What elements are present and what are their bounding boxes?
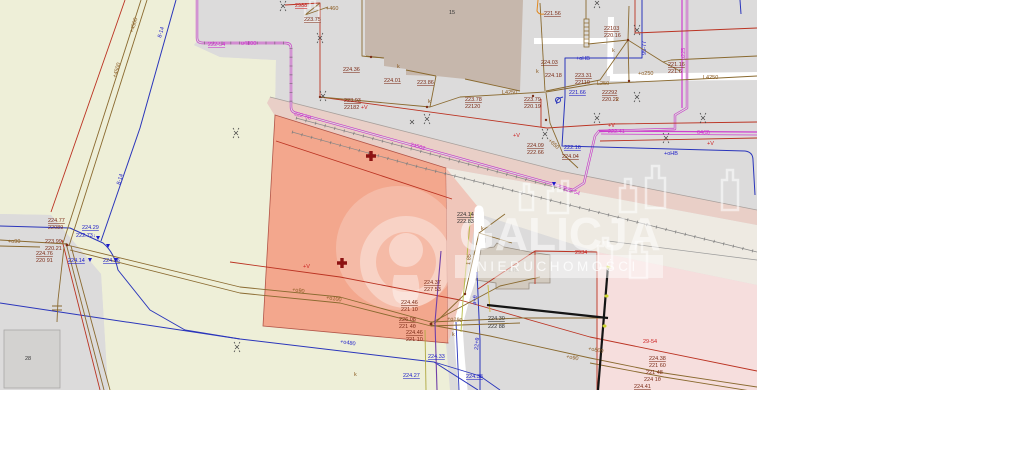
svg-text:221.56: 221.56 — [544, 11, 561, 17]
svg-text:224.38: 224.38 — [649, 356, 666, 362]
svg-text:224.46: 224.46 — [401, 300, 418, 306]
svg-text:221 10: 221 10 — [406, 337, 423, 343]
svg-text:224.14: 224.14 — [68, 258, 85, 264]
svg-text:223.79: 223.79 — [524, 97, 541, 103]
svg-text:NIERUCHOMOŚCI: NIERUCHOMOŚCI — [477, 259, 639, 274]
svg-text:22+θ: 22+θ — [474, 337, 481, 350]
svg-text:223.31: 223.31 — [575, 73, 592, 79]
svg-text:224.29: 224.29 — [82, 225, 99, 231]
svg-text:L250: L250 — [597, 81, 609, 87]
svg-text:95-77: 95-77 — [642, 41, 648, 55]
svg-text:227 53: 227 53 — [424, 287, 441, 293]
svg-text:224.46: 224.46 — [406, 330, 423, 336]
svg-text:k: k — [397, 64, 400, 70]
svg-text:64(3): 64(3) — [697, 130, 710, 136]
svg-text:22120: 22120 — [465, 104, 480, 110]
svg-text:222.66: 222.66 — [527, 150, 544, 156]
svg-text:224.04: 224.04 — [562, 154, 579, 160]
svg-text:222 88: 222 88 — [488, 324, 505, 330]
svg-text:22119: 22119 — [575, 80, 590, 86]
svg-text:221.66: 221.66 — [569, 90, 586, 96]
svg-text:L4250: L4250 — [502, 90, 517, 96]
svg-text:+oHB: +oHB — [664, 151, 678, 157]
svg-text:222.73↓: 222.73↓ — [76, 233, 96, 239]
svg-text:224.30: 224.30 — [488, 316, 505, 322]
svg-text:224.14: 224.14 — [457, 212, 474, 218]
svg-text:223.93: 223.93 — [344, 98, 361, 104]
svg-text:220.19: 220.19 — [524, 104, 541, 110]
svg-text:+V: +V — [513, 133, 520, 139]
svg-text:k: k — [481, 226, 484, 232]
svg-text:o225: o225 — [681, 48, 687, 60]
svg-text:221 10: 221 10 — [401, 307, 418, 313]
svg-text:2988: 2988 — [295, 3, 307, 9]
svg-text:k: k — [354, 372, 357, 378]
svg-text:k: k — [616, 97, 619, 103]
svg-text:221.6: 221.6 — [668, 69, 682, 75]
svg-text:222.83: 222.83 — [457, 219, 474, 225]
svg-text:22089: 22089 — [48, 225, 63, 231]
svg-text:224.27: 224.27 — [403, 373, 420, 379]
svg-text:223.99: 223.99 — [45, 239, 62, 245]
svg-text:o4800: o4800 — [241, 41, 256, 47]
svg-text:22182 +V: 22182 +V — [344, 105, 368, 111]
svg-text:224.41: 224.41 — [634, 384, 651, 390]
svg-text:221.16: 221.16 — [668, 62, 685, 68]
svg-text:+V: +V — [707, 141, 714, 147]
svg-text:29-54: 29-54 — [643, 339, 657, 345]
svg-text:k: k — [536, 69, 539, 75]
svg-text:15: 15 — [449, 10, 455, 16]
svg-text:k: k — [612, 48, 615, 54]
svg-text:1 85: 1 85 — [466, 254, 473, 265]
svg-text:+o90: +o90 — [8, 239, 20, 245]
svg-text:221 48: 221 48 — [646, 370, 663, 376]
svg-text:224.76: 224.76 — [36, 251, 53, 257]
svg-text:28: 28 — [25, 356, 31, 362]
svg-text:+V: +V — [303, 264, 310, 270]
svg-text:224.33: 224.33 — [428, 354, 445, 360]
svg-text:224.36: 224.36 — [343, 67, 360, 73]
svg-text:+oHB: +oHB — [576, 56, 590, 62]
svg-text:226 08: 226 08 — [399, 317, 416, 323]
svg-text:22103: 22103 — [604, 26, 619, 32]
svg-text:+V: +V — [608, 123, 615, 129]
svg-text:224 1θ: 224 1θ — [644, 377, 661, 383]
svg-text:224.38: 224.38 — [466, 374, 483, 380]
svg-text:222.16: 222.16 — [564, 145, 581, 151]
svg-text:223.75: 223.75 — [304, 17, 321, 23]
svg-text:224.37: 224.37 — [424, 280, 441, 286]
svg-text:224.09: 224.09 — [527, 143, 544, 149]
svg-text:223.86: 223.86 — [417, 80, 434, 86]
svg-text:k: k — [452, 332, 455, 338]
svg-text:221 60: 221 60 — [649, 363, 666, 369]
svg-text:GALICJA: GALICJA — [459, 208, 661, 260]
svg-text:223.78: 223.78 — [465, 97, 482, 103]
svg-text:220.16: 220.16 — [604, 33, 621, 39]
svg-text:+460: +460 — [326, 6, 338, 12]
svg-text:L4250: L4250 — [703, 75, 718, 81]
svg-text:2934: 2934 — [575, 250, 587, 256]
svg-text:224.77: 224.77 — [48, 218, 65, 224]
svg-text:224.18: 224.18 — [545, 73, 562, 79]
svg-text:k: k — [428, 99, 431, 105]
svg-text:222-54: 222-54 — [208, 42, 225, 48]
svg-text:222.41: 222.41 — [608, 129, 625, 135]
svg-text:224.03: 224.03 — [541, 60, 558, 66]
svg-text:220 91: 220 91 — [36, 258, 53, 264]
svg-text:ø+θ: ø+θ — [472, 295, 479, 305]
svg-text:224.01: 224.01 — [384, 78, 401, 84]
svg-text:+o250: +o250 — [638, 71, 653, 77]
svg-text:22292: 22292 — [602, 90, 617, 96]
